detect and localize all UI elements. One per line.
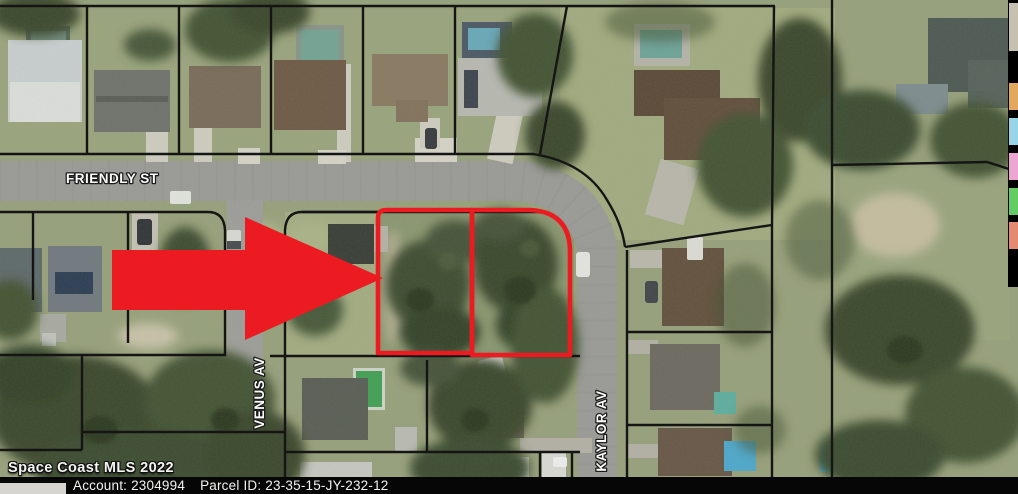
building-roof [189,66,261,128]
legend-strip [1008,0,1018,287]
legend-swatch-pink [1009,153,1018,180]
building-roof [274,60,346,130]
building-roof [650,344,720,410]
map-canvas: FRIENDLY ST VENUS AV KAYLOR AV [0,0,1018,494]
footer-bar: Account: 2304994Parcel ID: 23-35-15-JY-2… [0,477,1018,494]
legend-swatch-salmon [1009,222,1018,249]
account-value: 2304994 [131,478,185,493]
street-label-friendly: FRIENDLY ST [66,171,159,186]
street-label-venus: VENUS AV [252,357,267,429]
legend-swatch-thumbnail [1009,3,1018,51]
legend-swatch-tan [1009,83,1018,110]
parcel-id-value: 23-35-15-JY-232-12 [265,478,388,493]
legend-swatch-green [1009,188,1018,215]
parcel-id-label: Parcel ID: [200,478,261,493]
legend-swatch-light-blue [1009,118,1018,145]
account-label: Account: [73,478,127,493]
building-roof [658,428,732,476]
building-roof [302,378,368,440]
watermark: Space Coast MLS 2022 [8,460,174,476]
aerial-parcel-map: FRIENDLY ST VENUS AV KAYLOR AV Space Coa… [0,0,1018,494]
pool [714,392,736,414]
trailer-roof-peek [0,483,66,494]
street-label-kaylor: KAYLOR AV [594,390,609,471]
building-roof [372,54,448,106]
